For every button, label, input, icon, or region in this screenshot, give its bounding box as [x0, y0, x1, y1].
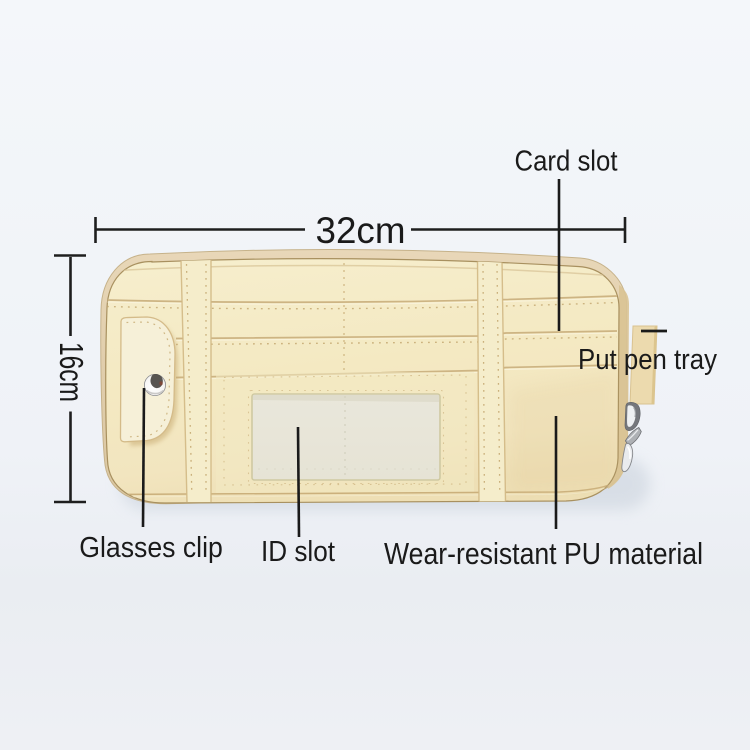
svg-text:32cm: 32cm: [316, 209, 406, 251]
svg-text:Wear-resistant PU material: Wear-resistant PU material: [384, 537, 703, 571]
svg-text:Put pen tray: Put pen tray: [578, 344, 717, 376]
svg-text:Glasses clip: Glasses clip: [79, 532, 223, 564]
svg-text:ID slot: ID slot: [261, 536, 335, 568]
svg-text:16cm: 16cm: [53, 342, 90, 402]
svg-text:Card slot: Card slot: [515, 146, 618, 178]
